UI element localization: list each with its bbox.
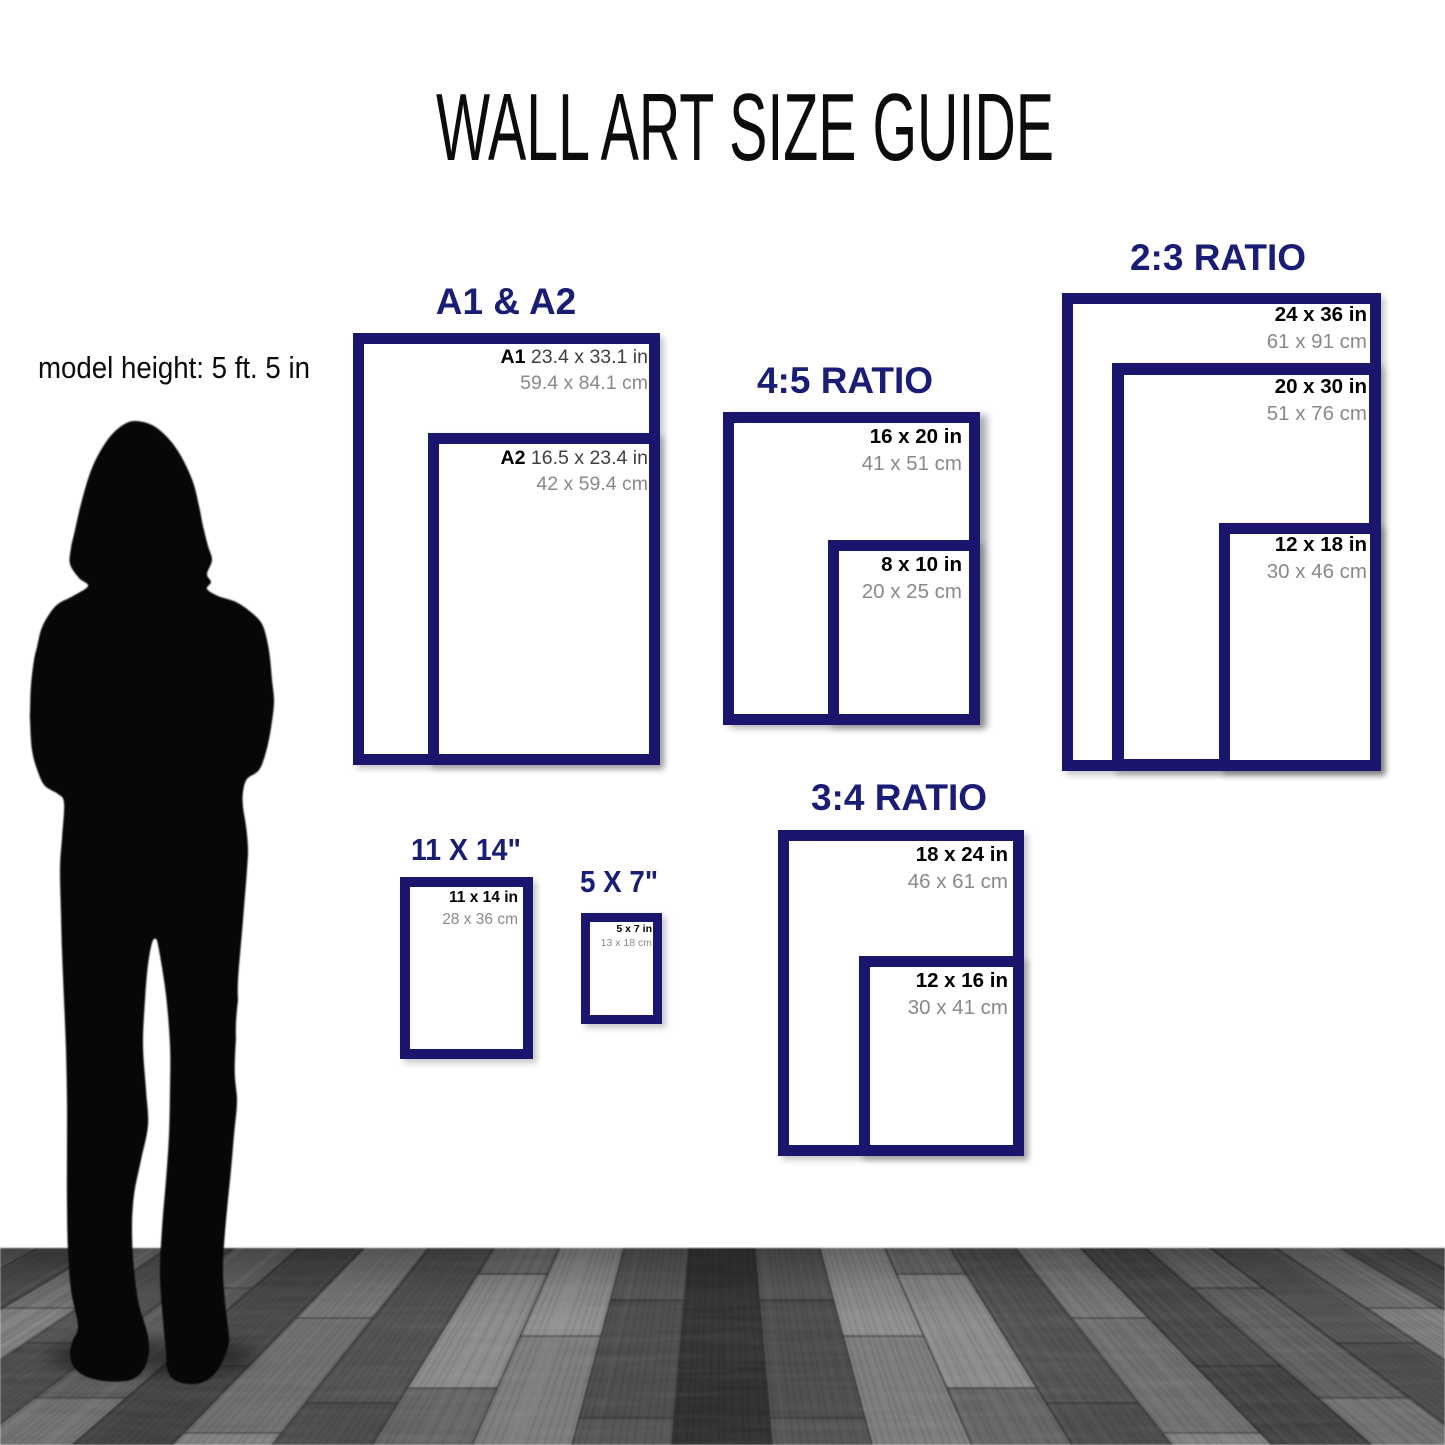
svg-text:11 X 14": 11 X 14" (411, 832, 521, 867)
svg-text:WALL ART SIZE GUIDE: WALL ART SIZE GUIDE (436, 74, 1054, 181)
svg-text:5 X 7": 5 X 7" (580, 864, 658, 899)
svg-text:model height: 5 ft. 5 in: model height: 5 ft. 5 in (38, 350, 310, 385)
